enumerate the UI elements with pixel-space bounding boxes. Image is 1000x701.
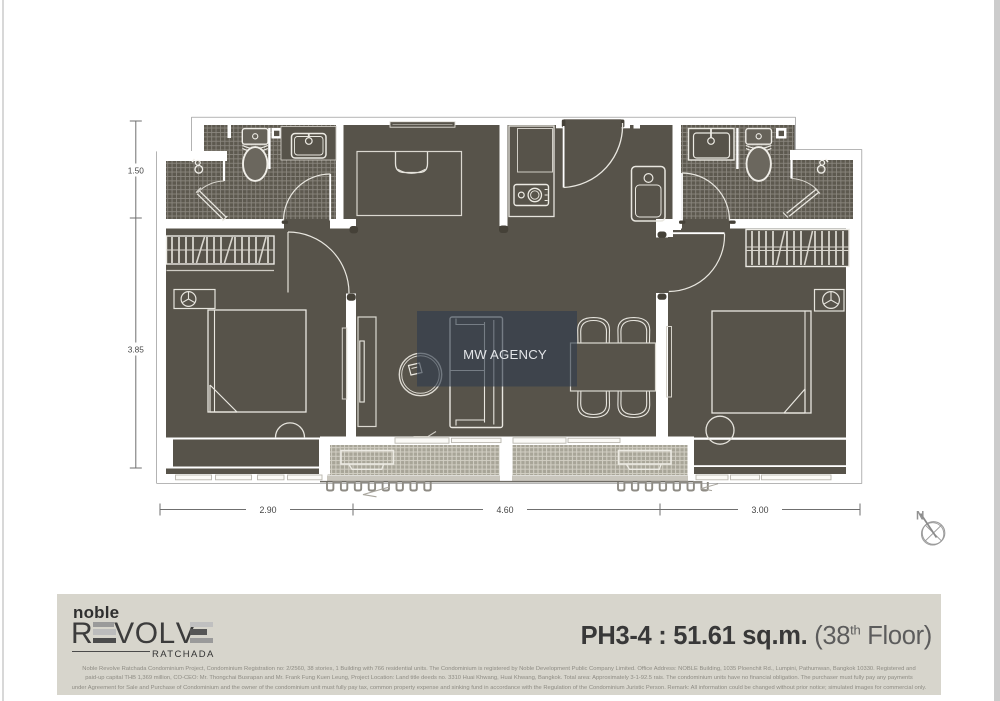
svg-text:3.85: 3.85 <box>128 345 145 355</box>
svg-text:3.00: 3.00 <box>751 505 768 515</box>
svg-text:MW AGENCY: MW AGENCY <box>463 347 547 362</box>
svg-text:N: N <box>916 511 924 523</box>
svg-text:4.60: 4.60 <box>496 505 513 515</box>
svg-text:2.90: 2.90 <box>259 505 276 515</box>
svg-text:1.50: 1.50 <box>128 166 145 176</box>
